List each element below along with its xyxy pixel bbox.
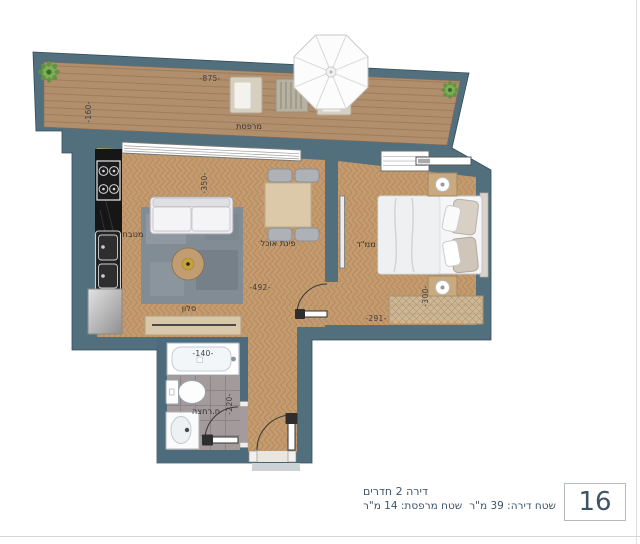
door-handle xyxy=(202,435,213,446)
label-balcony: מרפסת xyxy=(236,121,262,131)
dim-living-depth: -492- xyxy=(249,283,270,292)
dining-table xyxy=(265,183,311,227)
plant-icon xyxy=(441,81,459,99)
coffee-table xyxy=(172,248,204,280)
tv-console xyxy=(145,316,241,335)
bed xyxy=(378,193,488,277)
label-living: סלון xyxy=(182,303,196,313)
balcony-area-label: שטח מרפסת: 14 מ"ר xyxy=(363,499,462,513)
apartment-area-label: שטח דירה: 39 מ"ר xyxy=(469,499,556,513)
wardrobe xyxy=(389,296,483,324)
dining-chair xyxy=(295,169,319,182)
washbasin-icon xyxy=(166,412,199,449)
door-handle xyxy=(295,309,305,319)
unit-type-label: דירה 2 חדרים xyxy=(363,485,428,499)
sliding-door xyxy=(340,196,345,268)
unit-info: 16 דירה 2 חדרים שטח דירה: 39 מ"ר שטח מרפ… xyxy=(363,483,626,521)
unit-area-labels: שטח דירה: 39 מ"ר שטח מרפסת: 14 מ"ר xyxy=(363,499,556,513)
bathtub-icon xyxy=(167,343,239,375)
unit-number-box: 16 xyxy=(564,483,626,521)
dim-living-width: -350- xyxy=(200,172,209,193)
dim-saferoom-depth: -300- xyxy=(421,285,430,306)
plant-icon xyxy=(38,61,60,83)
page-border-bottom xyxy=(0,536,640,537)
dim-balcony-depth: -160- xyxy=(84,101,93,122)
unit-description: דירה 2 חדרים שטח דירה: 39 מ"ר שטח מרפסת:… xyxy=(363,483,556,513)
dim-bathtub-width: -140- xyxy=(192,349,213,358)
label-saferoom: ממ"ד xyxy=(356,239,375,249)
floor-plan-drawing: -875- -160- -350- -492- -300- -291- -140… xyxy=(0,0,640,544)
floor-plan-page: -875- -160- -350- -492- -300- -291- -140… xyxy=(0,0,640,544)
dim-saferoom-width: -291- xyxy=(365,314,386,323)
sofa xyxy=(150,197,233,234)
dining-chair xyxy=(295,228,319,241)
dining-area xyxy=(265,169,319,241)
lounge-chair xyxy=(230,77,262,113)
stove-icon xyxy=(97,161,120,200)
dim-bathroom-depth: -220- xyxy=(225,393,234,414)
label-bathroom: ח.רחצה xyxy=(192,406,220,416)
dining-chair xyxy=(268,169,292,182)
label-dining: פינת אוכל xyxy=(261,238,296,248)
dim-balcony-width: -875- xyxy=(199,74,220,83)
kitchen-sink-icon xyxy=(96,231,121,292)
unit-number: 16 xyxy=(578,487,611,517)
door-handle xyxy=(286,413,298,424)
label-kitchen: מטבח xyxy=(123,229,144,239)
page-border-right xyxy=(636,0,637,544)
umbrella-icon xyxy=(294,35,368,109)
toilet-icon xyxy=(166,380,206,404)
fridge-icon xyxy=(88,289,122,334)
nightstand xyxy=(428,173,457,196)
